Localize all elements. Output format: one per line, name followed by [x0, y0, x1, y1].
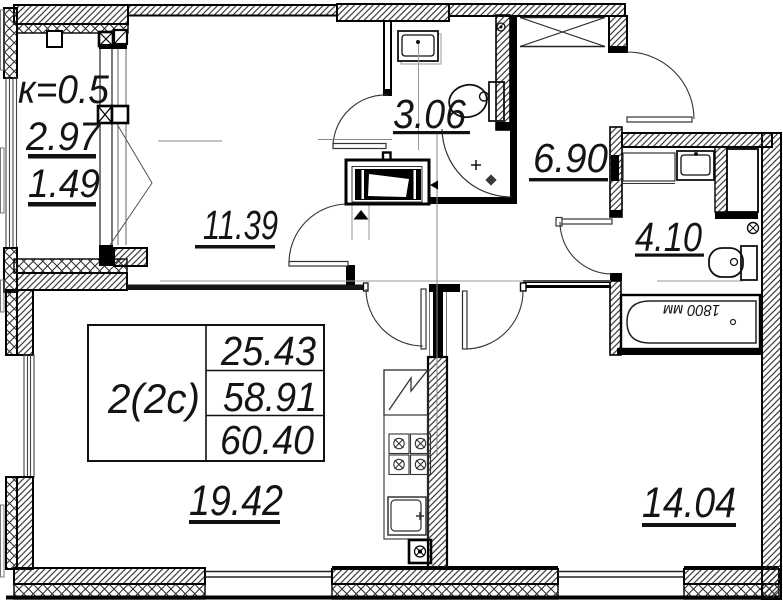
svg-text:25.43: 25.43: [220, 328, 316, 374]
svg-text:1.49: 1.49: [28, 162, 100, 206]
svg-text:19.42: 19.42: [189, 477, 283, 525]
svg-text:6.90: 6.90: [533, 135, 608, 181]
svg-text:1800 мм: 1800 мм: [663, 301, 720, 318]
svg-text:60.40: 60.40: [220, 417, 314, 463]
svg-text:11.39: 11.39: [203, 202, 278, 248]
svg-text:4.10: 4.10: [635, 214, 702, 260]
svg-text:2(2с): 2(2с): [107, 375, 200, 422]
svg-text:2.97: 2.97: [25, 115, 102, 159]
svg-text:3.06: 3.06: [393, 91, 466, 137]
svg-text:58.91: 58.91: [223, 374, 317, 420]
svg-text:14.04: 14.04: [642, 479, 736, 527]
svg-text:к=0.5: к=0.5: [18, 68, 110, 112]
